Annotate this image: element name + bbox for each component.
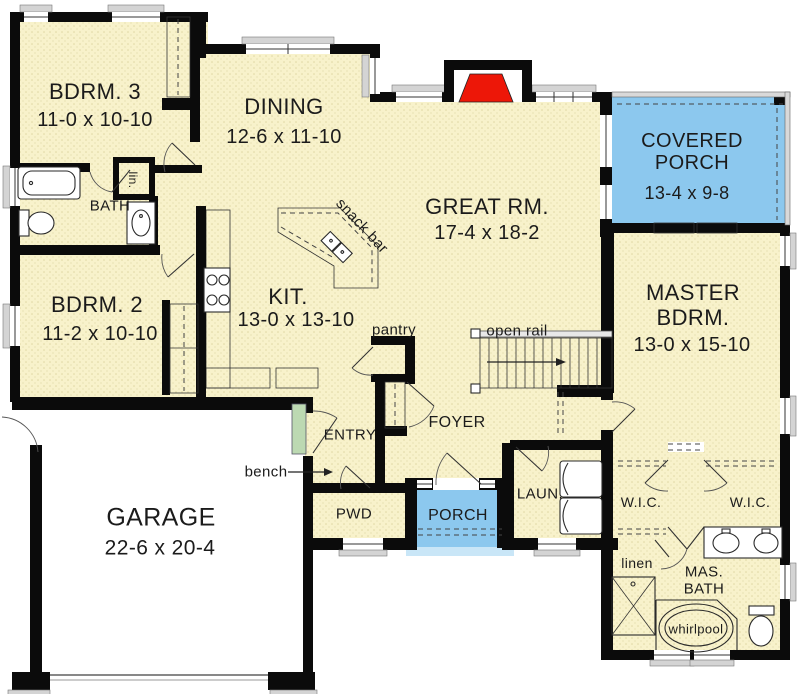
laundry-name: LAUN. <box>517 487 563 502</box>
dining-name: DINING <box>244 96 323 118</box>
whirlpool-label: whirlpool <box>669 623 724 636</box>
toilet-bowl <box>28 212 54 234</box>
pantry-label: pantry <box>372 323 416 338</box>
great-room-name: GREAT RM. <box>425 196 549 218</box>
bdrm3-name: BDRM. 3 <box>49 81 141 103</box>
master-bath-name-line2: BATH <box>684 582 725 597</box>
kitchen-name: KIT. <box>268 286 308 308</box>
master-bdrm-name-line2: BDRM. <box>657 307 730 329</box>
linen-name: linen <box>621 556 653 570</box>
master-bdrm-name-line1: MASTER <box>646 282 740 304</box>
bdrm3-dims: 11-0 x 10-10 <box>37 110 153 130</box>
wic-right-name: W.I.C. <box>730 495 771 509</box>
dining-dims: 12-6 x 11-10 <box>226 127 342 147</box>
bdrm2-name: BDRM. 2 <box>51 294 143 316</box>
bath-vanity <box>127 202 155 244</box>
lin-closet-label: lin. <box>127 172 139 189</box>
bdrm2-dims: 11-2 x 10-10 <box>42 324 158 344</box>
master-bath-name-line1: MAS. <box>685 565 723 580</box>
open-rail-label: open rail <box>486 324 547 339</box>
great-room-dims: 17-4 x 18-2 <box>434 223 540 243</box>
garage-name: GARAGE <box>106 506 215 531</box>
entry-name: ENTRY <box>324 428 377 443</box>
fireplace <box>444 60 532 102</box>
wic-left-name: W.I.C. <box>621 495 662 509</box>
garage-dims: 22-6 x 20-4 <box>105 538 216 559</box>
kitchen-dims: 13-0 x 13-10 <box>237 310 354 330</box>
covered-porch-dims: 13-4 x 9-8 <box>644 184 729 202</box>
bench-seat <box>292 404 306 454</box>
stove <box>204 268 230 312</box>
porch-name: PORCH <box>428 508 488 524</box>
bench-label: bench <box>245 465 288 480</box>
covered-porch-name-line1: COVERED <box>641 131 743 151</box>
porch-step <box>406 547 514 556</box>
master-bdrm-dims: 13-0 x 15-10 <box>633 335 750 355</box>
pwd-name: PWD <box>336 507 372 522</box>
foyer-name: FOYER <box>428 415 485 431</box>
covered-porch-name-line2: PORCH <box>655 153 729 173</box>
master-toilet-bowl <box>749 616 773 646</box>
bath-name: BATH <box>90 199 131 214</box>
floor-plan: BDRM. 3 11-0 x 10-10 DINING 12-6 x 11-10… <box>0 0 799 694</box>
master-toilet-tank <box>749 606 774 615</box>
